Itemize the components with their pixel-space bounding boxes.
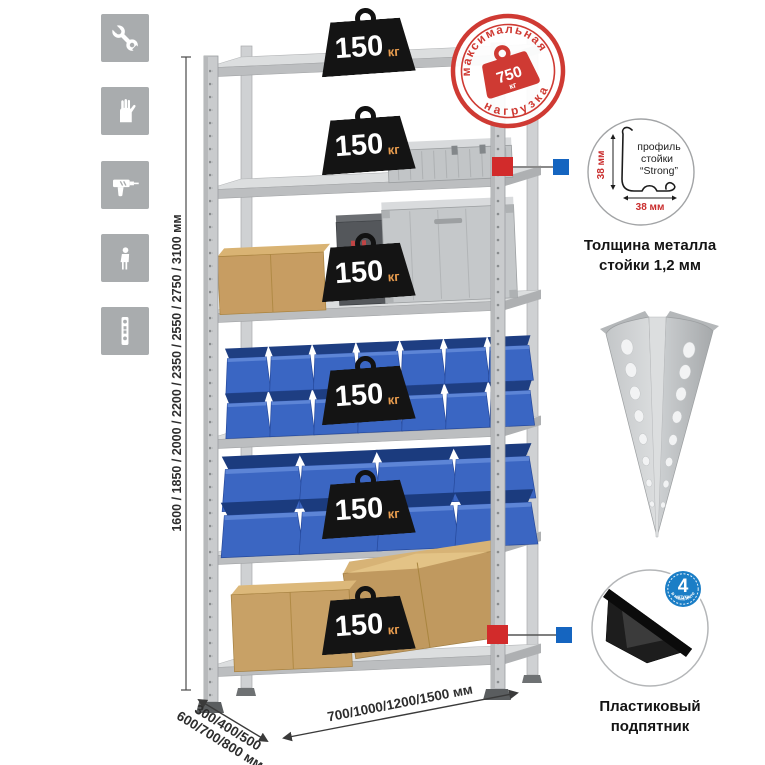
profile-label-3: “Strong” [640,165,678,177]
load-value: 150 [334,379,384,411]
load-unit: кг [387,44,400,58]
quantity-badge: 4 штуки в комплекте [663,569,703,609]
load-badge: 150кг [318,115,416,175]
max-load-stamp: максимальная нагрузка 750 кг [447,8,569,132]
profile-label-1: профиль [637,141,681,153]
thickness-caption: Толщина металла стойки 1,2 мм [560,236,740,275]
upright-profile-icon [109,315,141,347]
load-value: 150 [334,129,384,161]
weight-plate: 150кг [318,595,416,655]
cardboard-box [217,244,333,315]
load-badge: 150кг [318,479,416,539]
wrench-icon [109,22,141,54]
feature-icon-wrench [101,14,149,62]
rack-foot [522,675,542,683]
thickness-caption-line1: Толщина металла [560,236,740,256]
load-unit: кг [387,392,400,406]
weight-plate: 150кг [318,365,416,425]
load-badge: 150кг [318,242,416,302]
upright-perforation [496,48,500,688]
angle-post-image [600,311,719,537]
person-icon [112,245,139,272]
rack-upright-shade [204,56,208,702]
load-badge: 150кг [318,17,416,77]
load-badge: 150кг [318,595,416,655]
upright-perforation [209,60,213,700]
load-value: 150 [334,609,384,641]
profile-dim-vertical-label: 38 мм [596,151,607,180]
callout-marker-red-bottom [487,625,508,644]
infographic-canvas: 38 мм 38 мм профиль стойки “Strong” [0,0,765,765]
load-value: 150 [334,256,384,288]
weight-plate: 150кг [318,115,416,175]
profile-dim-horizontal-label: 38 мм [636,202,665,213]
callout-marker-blue-bottom [556,627,572,643]
weight-plate: 150кг [318,479,416,539]
feature-icon-upright-profile [101,307,149,355]
height-dimension-label: 1600 / 1850 / 2000 / 2200 / 2350 / 2550 … [170,214,184,531]
feature-icon-drill [101,161,149,209]
weight-plate: 150кг [318,17,416,77]
load-unit: кг [387,142,400,156]
weight-plate: 150кг [318,242,416,302]
rack-upright-shade [491,43,495,689]
foot-caption-line1: Пластиковый [560,697,740,717]
callout-marker-blue-top [553,159,569,175]
drill-icon [109,169,141,201]
profile-label-2: стойки [641,153,673,165]
foot-caption-line2: подпятник [560,717,740,737]
load-value: 150 [334,493,384,525]
feature-icon-person [101,234,149,282]
thickness-caption-line2: стойки 1,2 мм [560,256,740,276]
load-unit: кг [387,269,400,283]
load-unit: кг [387,622,400,636]
load-value: 150 [334,31,384,63]
foot-detail-circle: 4 штуки в комплекте [592,569,708,686]
profile-detail-circle: 38 мм 38 мм профиль стойки “Strong” [588,119,694,225]
load-unit: кг [387,506,400,520]
load-badge: 150кг [318,365,416,425]
feature-icon-gloves [101,87,149,135]
gloves-icon [110,96,140,126]
callout-marker-red-top [492,157,513,176]
foot-caption: Пластиковый подпятник [560,697,740,736]
rack-foot [236,688,256,696]
